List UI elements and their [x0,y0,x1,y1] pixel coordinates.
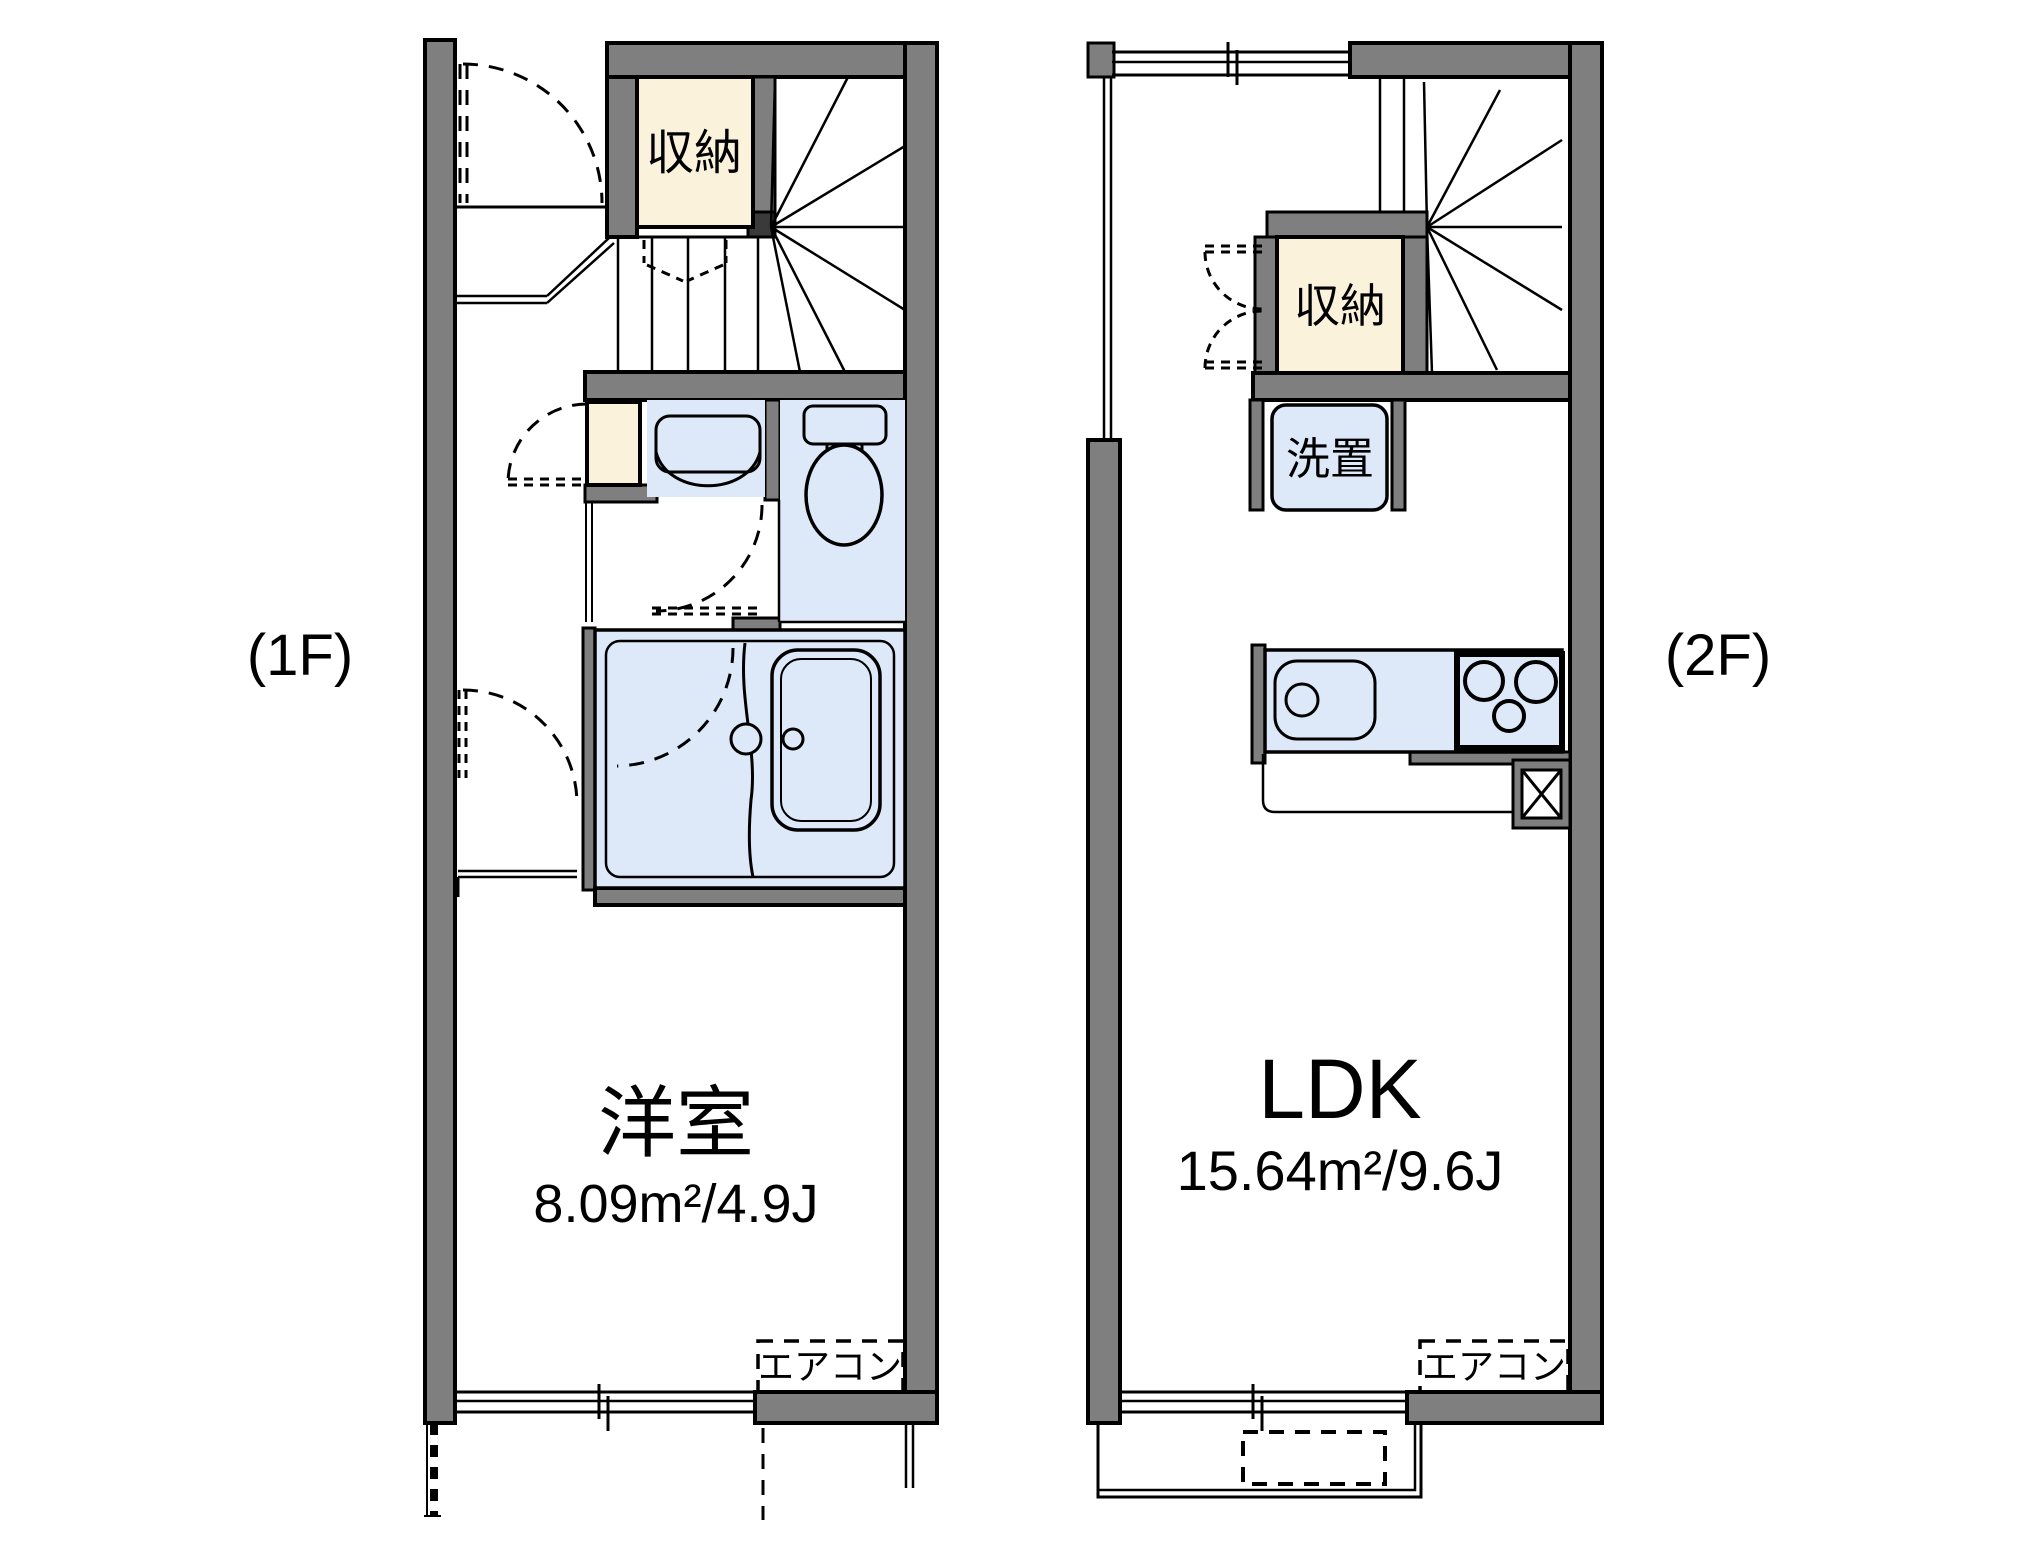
wall-segment [1392,400,1405,510]
wall-segment [1250,400,1263,510]
wall-segment [425,40,455,1423]
2f-ldk-room: LDK 15.64m²/9.6J [1177,1042,1504,1202]
wall-segment [585,372,905,400]
wall-segment [595,888,905,905]
1f-window-south [455,1384,755,1431]
wall-segment [1088,43,1114,77]
wall-segment [607,77,637,237]
floor-plan-2f: 収納 洗置 [1088,42,1771,1497]
2f-window-south [1120,1384,1407,1431]
wall-segment [585,485,657,502]
floor-label-2f: (2F) [1665,623,1771,688]
1f-bathroom [595,630,905,888]
wall-segment [733,618,780,630]
wall-segment [1350,43,1602,77]
storage-label: 収納 [1294,280,1386,332]
wall-segment [607,43,937,77]
room-name-label: 洋室 [598,1079,754,1167]
1f-aircon: エアコン [758,1341,903,1392]
floor-plan-drawing: 収納 [0,0,2031,1543]
2f-balcony [1098,1423,1421,1497]
washer-label: 洗置 [1286,435,1374,484]
wall-segment [1252,645,1265,763]
2f-washer-space: 洗置 [1272,405,1387,510]
door-swing-arc [463,690,577,804]
stair-winder-line [1427,140,1562,227]
2f-window-north [1112,42,1350,85]
wall-segment [1255,237,1277,373]
wall-segment [1407,1392,1602,1423]
hall-cabinet [587,402,640,485]
room-size-label: 15.64m²/9.6J [1177,1139,1504,1202]
aircon-label: エアコン [1422,1346,1566,1387]
storage-label: 収納 [646,127,742,180]
2f-storage-closet: 収納 [1205,237,1403,373]
1f-washroom [508,400,765,622]
wall-segment [583,628,595,890]
door-swing-arc [463,64,602,203]
wall-segment [905,43,937,1423]
step-line [547,238,609,296]
stair-winder-line [1427,90,1500,227]
closet-door-line [687,265,723,281]
1f-porch [424,1423,913,1520]
door-swing-arc [1205,252,1262,309]
door-swing-arc [656,505,762,611]
wall-segment [755,1392,937,1423]
aircon-label: エアコン [758,1346,902,1387]
stair-winder-line [1424,82,1427,227]
1f-toilet-room [779,400,905,622]
2f-aircon: エアコン [1420,1341,1568,1392]
floor-plan-page: 収納 [0,0,2031,1543]
kitchen-counter [1265,650,1562,752]
wall-segment [1253,373,1570,400]
2f-pipe-shaft [1522,770,1561,818]
wall-segment [1403,237,1427,373]
stair-winder-line [771,227,800,372]
wall-segment [1267,212,1427,237]
wall-segment [765,400,780,500]
wall-segment [1570,43,1602,1423]
1f-storage-closet: 収納 [637,77,753,281]
1f-western-room: 洋室 8.09m²/4.9J [533,1079,818,1234]
bath-drain [731,724,761,754]
wall-segment [1088,440,1120,1423]
door-swing-arc [508,404,587,483]
floor-plan-1f: 収納 [247,40,937,1520]
room-size-label: 8.09m²/4.9J [533,1174,818,1234]
door-swing-arc [1205,311,1262,368]
balcony-dashed-area [1243,1432,1385,1484]
floor-label-1f: (1F) [247,623,353,688]
step-line [547,243,614,303]
1f-room-door [458,690,577,897]
room-name-label: LDK [1258,1042,1421,1136]
1f-entrance-door [455,64,614,303]
